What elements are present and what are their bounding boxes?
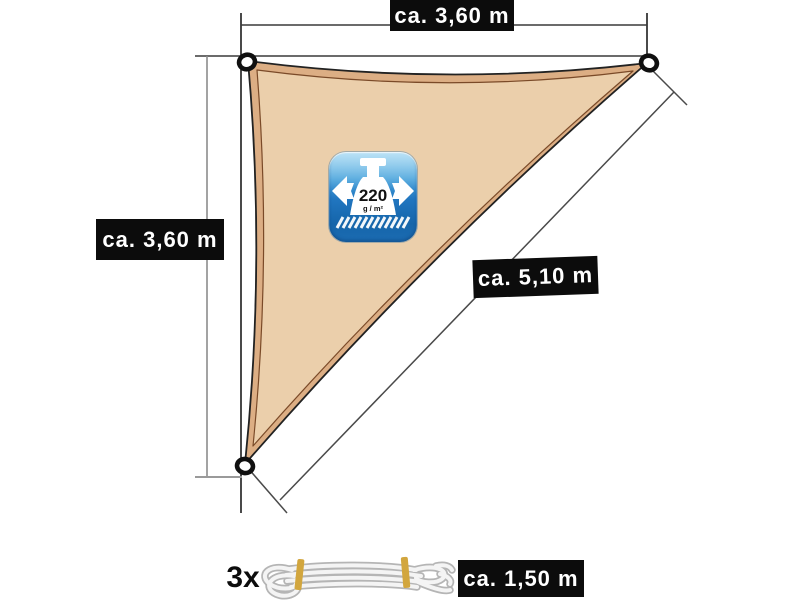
badge-weight-value: 220 — [359, 186, 387, 205]
rope-icon — [265, 557, 452, 596]
dimension-label-diagonal: ca. 5,10 m — [472, 256, 598, 298]
dimension-label-top-width: ca. 3,60 m — [390, 0, 514, 31]
diagram-scene — [0, 0, 800, 600]
dimension-label-left-height: ca. 3,60 m — [96, 219, 224, 260]
grommet-ring-icon — [237, 53, 257, 72]
extension-line-diagonal-bottom — [247, 467, 287, 513]
rope-quantity-label: 3x — [222, 560, 264, 596]
product-dimension-diagram: 220 g / m² ca. 3,60 m ca. 3,60 m ca. 5,1… — [0, 0, 800, 600]
extension-line-diagonal-top — [650, 68, 687, 105]
grommet-ring-icon — [639, 53, 659, 72]
hatched-ground-icon — [337, 217, 409, 228]
dimension-label-rope-length: ca. 1,50 m — [458, 560, 584, 597]
arrow-left-icon — [332, 176, 354, 206]
arrow-right-icon — [392, 176, 414, 206]
badge-weight-unit: g / m² — [363, 204, 384, 213]
weight-badge-graphic: 220 g / m² — [329, 152, 417, 242]
weight-badge: 220 g / m² — [329, 152, 417, 242]
grommet-ring-icon — [236, 457, 255, 474]
